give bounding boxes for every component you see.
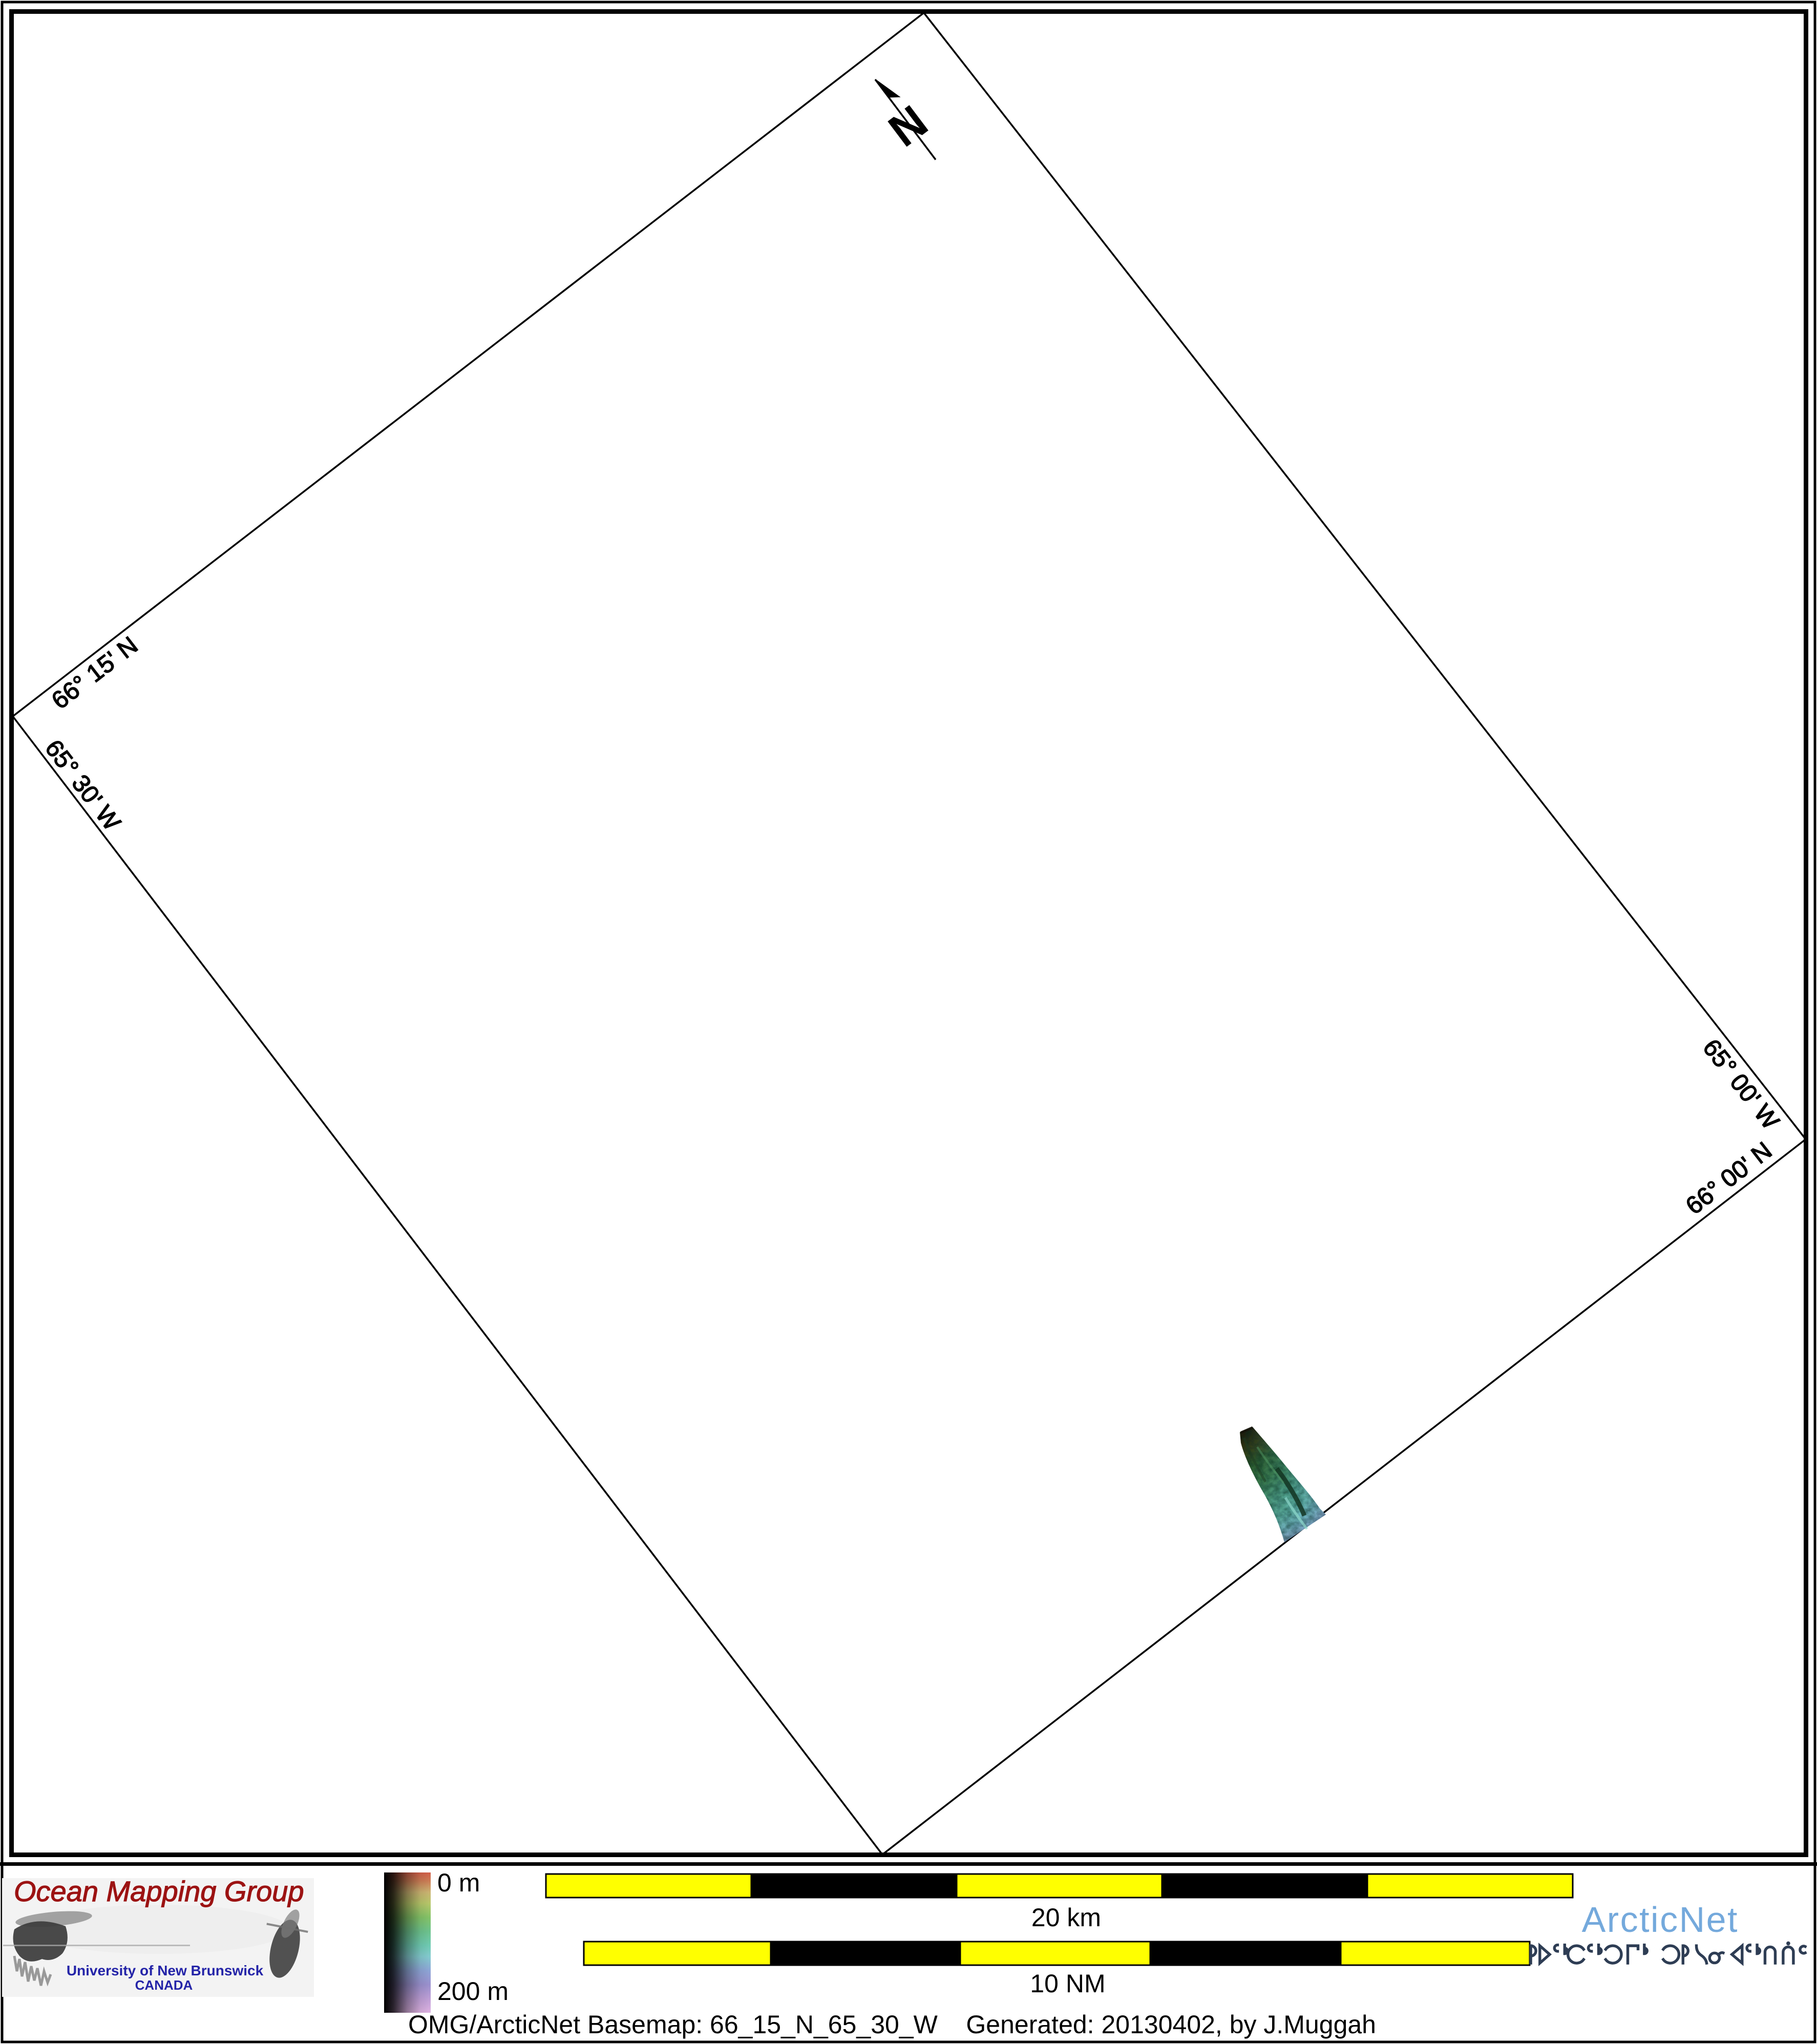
svg-text:10 NM: 10 NM xyxy=(1030,1969,1105,1998)
svg-text:University of New Brunswick: University of New Brunswick xyxy=(67,1963,264,1978)
svg-text:ArcticNet: ArcticNet xyxy=(1582,1900,1739,1940)
svg-text:Ocean Mapping Group: Ocean Mapping Group xyxy=(14,1875,304,1907)
svg-text:0 m: 0 m xyxy=(437,1868,480,1897)
svg-text:OMG/ArcticNet Basemap: 66_15_N: OMG/ArcticNet Basemap: 66_15_N_65_30_W G… xyxy=(408,2010,1376,2039)
svg-text:200 m: 200 m xyxy=(437,1977,509,2006)
svg-text:20 km: 20 km xyxy=(1031,1903,1101,1932)
svg-text:CANADA: CANADA xyxy=(135,1977,193,1993)
